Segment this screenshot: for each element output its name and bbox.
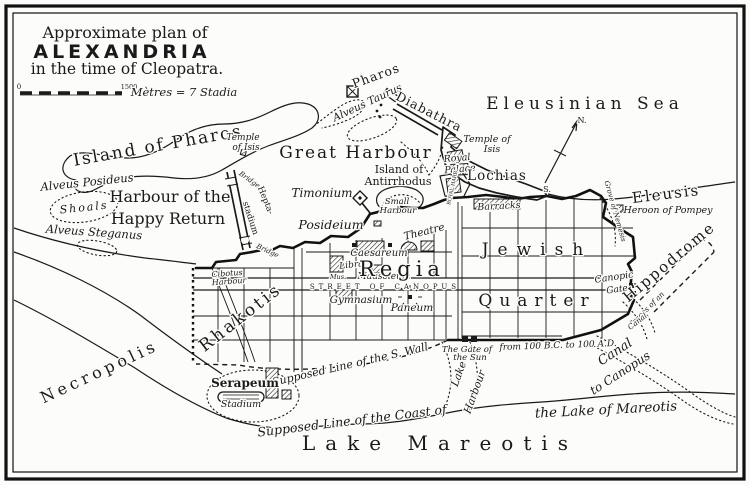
compass-north-label: N. — [577, 116, 586, 125]
label-heroon-of-pompey: Heroon of Pompey — [622, 205, 713, 216]
label-quarter: Quarter — [478, 291, 595, 311]
label-cibotus-2: Harbour — [211, 276, 248, 288]
label-lochias: Lochias — [467, 168, 527, 184]
obelisk-east — [388, 243, 392, 247]
map-title-line3: in the time of Cleopatra. — [31, 60, 223, 78]
label-shoals: Shoals — [59, 198, 109, 216]
scale-bar: 0 1500 Mètres = 7 Stadia — [17, 83, 238, 99]
label-antirrhodus: Antirrhodus — [364, 175, 432, 188]
label-street-of-canopus: STREET OF CANOPUS — [310, 283, 460, 291]
label-paneum: Paneum — [390, 302, 434, 314]
serapeum-annex — [282, 390, 291, 399]
steganus-shoal — [76, 238, 118, 259]
label-bridge-south: Bridge — [254, 242, 280, 260]
northeast-features — [545, 121, 735, 424]
title-block: Approximate plan of ALEXANDRIA in the ti… — [31, 23, 223, 78]
label-temple-isis-lochias-2: Isis — [483, 144, 501, 155]
compass-south-label: S. — [543, 185, 551, 194]
scale-unit: Mètres = 7 Stadia — [130, 85, 238, 99]
label-temple-isis-island-2: of Isis — [232, 143, 260, 153]
label-harbour-of-the: Harbour of the — [110, 187, 231, 206]
label-posideium: Posideium — [297, 217, 363, 232]
compass-rose — [545, 121, 577, 183]
label-heptastadium-1: Hepta- — [255, 185, 275, 216]
label-alveus-taurus: Alveus Taurus — [330, 81, 404, 124]
label-great-harbour: Great Harbour — [279, 143, 432, 163]
alexandria-historical-map: Approximate plan of ALEXANDRIA in the ti… — [0, 0, 750, 485]
cibotus-harbour-shore — [196, 252, 252, 268]
label-jewish: Jewish — [480, 240, 593, 260]
label-eleusis: Eleusis — [631, 181, 701, 207]
label-diabathra: Diabathra — [394, 88, 465, 134]
label-stadium: Stadium — [221, 399, 261, 410]
label-lake-of-mareotis: the Lake of Mareotis — [534, 398, 677, 421]
label-lake-harbour-1: Lake — [449, 360, 469, 389]
label-theatre: Theatre — [403, 221, 446, 243]
label-regia: Regia — [359, 257, 445, 281]
label-small-harbour-2: Harbour — [379, 206, 418, 216]
map-title-line1: Approximate plan of — [42, 23, 209, 42]
posideium-symbol — [374, 221, 381, 226]
label-barracks: Barracks — [476, 200, 521, 213]
timonium-pier — [353, 191, 370, 213]
label-happy-return: Happy Return — [111, 209, 225, 228]
label-lake-harbour-2: Harbour — [461, 368, 488, 416]
label-gymnasium: Gymnasium — [330, 294, 393, 306]
label-serapeum: Serapeum — [211, 376, 279, 390]
label-eleusinian-sea: Eleusinian Sea — [486, 94, 684, 114]
temple-of-isis-lochias-symbol — [444, 133, 461, 149]
label-s-wall: Supposed Line of the S. Wall — [271, 340, 430, 389]
label-lake-mareotis: Lake Mareotis — [302, 431, 578, 455]
scale-zero: 0 — [17, 83, 21, 91]
label-island-of-pharos: Island of Pharos — [72, 121, 245, 171]
obelisk-west — [352, 243, 356, 247]
label-timonium: Timonium — [291, 186, 352, 200]
label-museum: Mus. — [329, 273, 346, 281]
theatre-annex — [421, 241, 434, 251]
label-rhakotis: Rhakotis — [195, 279, 286, 356]
label-hippodrome: Hippodrome — [619, 218, 719, 306]
label-heptastadium-2: stadium — [240, 200, 260, 236]
label-temple-isis-island-1: Temple — [226, 133, 259, 143]
